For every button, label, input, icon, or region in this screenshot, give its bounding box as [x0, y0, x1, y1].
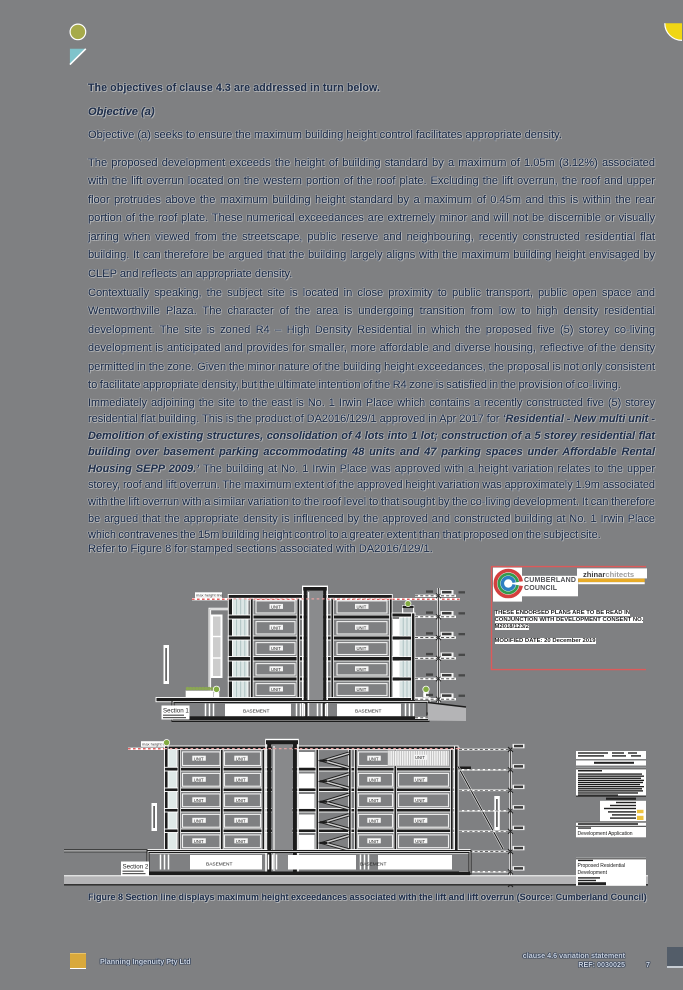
svg-text:UNIT: UNIT: [369, 777, 379, 782]
svg-text:UNIT: UNIT: [271, 605, 281, 610]
svg-text:UNIT: UNIT: [357, 605, 367, 610]
svg-text:UNIT: UNIT: [369, 756, 379, 761]
svg-text:UNIT: UNIT: [236, 818, 246, 823]
svg-text:UNIT: UNIT: [194, 756, 204, 761]
svg-text:Section 2: Section 2: [123, 864, 149, 871]
svg-text:UNIT: UNIT: [357, 625, 367, 630]
svg-text:UNIT: UNIT: [357, 687, 367, 692]
svg-text:UNIT: UNIT: [357, 667, 367, 672]
svg-text:UNIT: UNIT: [194, 798, 204, 803]
svg-text:UNIT: UNIT: [271, 646, 281, 651]
svg-text:BASEMENT: BASEMENT: [360, 861, 386, 867]
svg-text:UNIT: UNIT: [369, 818, 379, 823]
svg-text:max height line: max height line: [196, 593, 224, 598]
svg-text:UNIT: UNIT: [236, 839, 246, 844]
svg-text:Proposed Residential: Proposed Residential: [578, 863, 626, 869]
svg-text:UNIT: UNIT: [271, 667, 281, 672]
svg-text:UNIT: UNIT: [236, 777, 246, 782]
svg-text:UNIT: UNIT: [271, 625, 281, 630]
svg-text:UNIT: UNIT: [415, 755, 425, 760]
svg-text:BASEMENT: BASEMENT: [355, 709, 381, 715]
svg-text:UNIT: UNIT: [415, 798, 425, 803]
svg-text:Development: Development: [578, 870, 608, 876]
svg-text:UNIT: UNIT: [369, 839, 379, 844]
svg-text:BASEMENT: BASEMENT: [243, 709, 269, 715]
svg-text:BASEMENT: BASEMENT: [206, 861, 232, 867]
svg-text:UNIT: UNIT: [194, 818, 204, 823]
svg-text:UNIT: UNIT: [194, 839, 204, 844]
svg-text:UNIT: UNIT: [357, 646, 367, 651]
svg-text:UNIT: UNIT: [415, 818, 425, 823]
svg-text:UNIT: UNIT: [271, 687, 281, 692]
svg-text:Section 1: Section 1: [163, 708, 189, 715]
svg-text:UNIT: UNIT: [415, 839, 425, 844]
svg-text:UNIT: UNIT: [369, 798, 379, 803]
svg-text:Development Application: Development Application: [578, 831, 633, 837]
svg-text:UNIT: UNIT: [194, 777, 204, 782]
svg-text:UNIT: UNIT: [236, 756, 246, 761]
svg-text:UNIT: UNIT: [236, 798, 246, 803]
svg-text:UNIT: UNIT: [415, 777, 425, 782]
